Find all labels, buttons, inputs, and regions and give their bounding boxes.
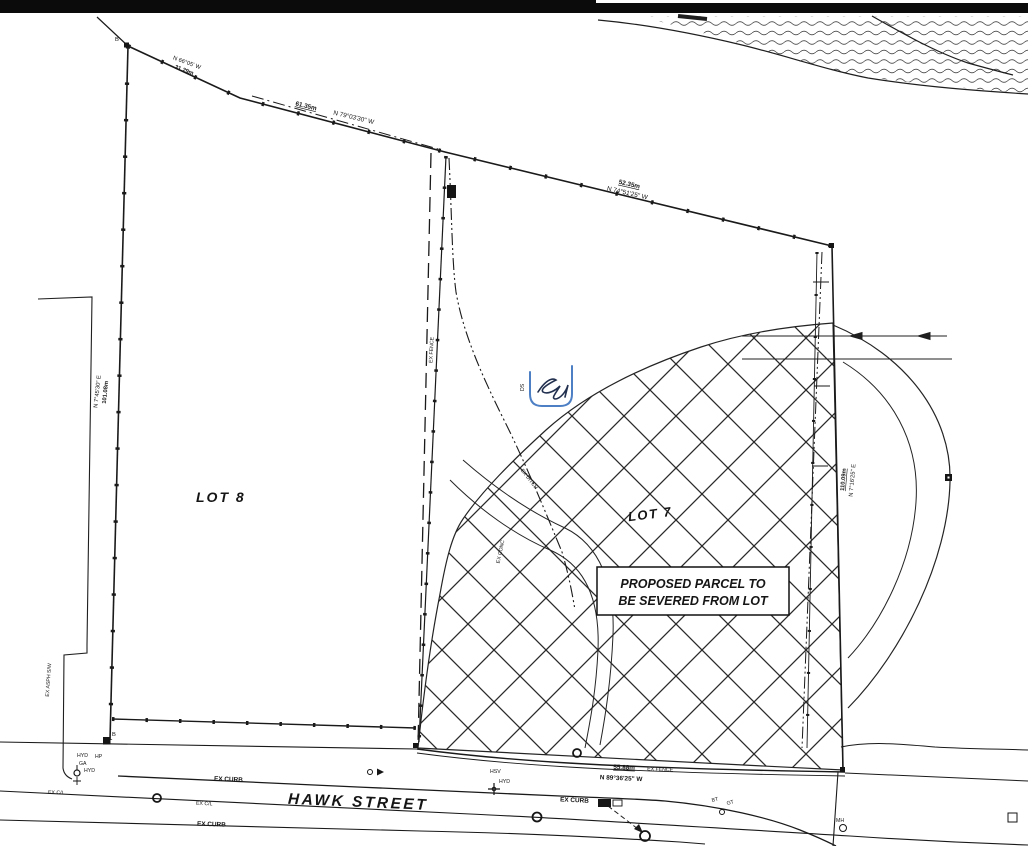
- survey-plan-drawing: LOT 8 LOT 7 PROPOSED PARCEL TO BE SEVERE…: [0, 0, 1028, 846]
- ex-curb-label: EX CURB: [197, 821, 226, 829]
- monument-icon: [124, 43, 129, 48]
- ex-curb-label: EX CURB: [560, 796, 589, 805]
- flag-square-icon: [1008, 813, 1017, 822]
- bf-triangle-icon: [377, 769, 384, 776]
- ex-curb-label: EX CURB: [214, 776, 243, 784]
- west-boundary: [110, 46, 128, 740]
- monument-icon: [103, 737, 111, 745]
- blue-annotation: [530, 366, 572, 406]
- driveway-dashed-arrow: [608, 806, 638, 829]
- arrow-icon: [918, 333, 930, 340]
- hyd-label: HYD: [77, 753, 88, 759]
- ex-fence-label: EX FENCE: [428, 336, 435, 363]
- parcel-note-line1: PROPOSED PARCEL TO: [620, 577, 765, 591]
- utility-icon: [368, 770, 373, 775]
- water-fill: [642, 16, 1028, 93]
- ds-label: DS: [520, 383, 526, 391]
- hp-label: HP: [95, 754, 103, 760]
- hsv-label: HSV: [490, 769, 501, 775]
- svg-text:55.88m: 55.88m: [613, 764, 635, 772]
- hydrant-icon: [73, 765, 81, 785]
- lot8-south-boundary: [112, 719, 416, 728]
- ex-cl-label: EX C/L: [196, 801, 213, 808]
- street-label: HAWK STREET: [288, 791, 429, 814]
- monument-icon: [413, 743, 418, 748]
- bearing-north-upper: N 66°05' W 31.29m: [169, 55, 202, 78]
- svg-text:110.09m: 110.09m: [840, 468, 848, 491]
- bearing-west: N 7°45'30" E 101.08m: [93, 375, 110, 409]
- bearing-north-lower: 52.35m N 74°51'25" W: [606, 177, 651, 202]
- north-boundary: [128, 46, 832, 246]
- blue-bracket: [530, 366, 572, 406]
- wavy-line-right: [841, 744, 1028, 750]
- svg-text:EX FENCE: EX FENCE: [647, 766, 674, 773]
- svg-text:N 7°16'25" E: N 7°16'25" E: [849, 464, 858, 497]
- water-area: [598, 16, 1028, 94]
- shed-block: [447, 185, 456, 198]
- svg-text:N 89°36'25" W: N 89°36'25" W: [600, 773, 644, 783]
- north-curb-line: [118, 776, 836, 846]
- lot8-label: LOT 8: [196, 489, 246, 505]
- parcel-note-line2: BE SEVERED FROM LOT: [618, 594, 769, 608]
- mh-label: MH: [836, 818, 844, 824]
- bearing-east: 110.09m N 7°16'25" E: [840, 463, 858, 497]
- centerline: [0, 791, 1028, 845]
- ga-label: GA: [79, 761, 87, 767]
- frontage-line-west: [0, 742, 417, 749]
- survey-plan-sheet: LOT 8 LOT 7 PROPOSED PARCEL TO BE SEVERE…: [0, 0, 1028, 846]
- ex-asph-sw-label: EX ASPH S/W: [45, 663, 53, 697]
- handwritten-initials: [538, 379, 568, 399]
- north-boundary-ticks: [128, 46, 832, 246]
- ex-cl-label: EX C/L: [48, 790, 65, 797]
- south-curb-line: [0, 820, 705, 844]
- right-ditch-arcs: [833, 325, 950, 708]
- crosshatch-parcel: [418, 323, 843, 770]
- monument-icon: [840, 767, 845, 772]
- hyd-label: HYD: [84, 768, 95, 774]
- north-tie-dashdot: [252, 96, 438, 149]
- b-label: B: [112, 732, 116, 738]
- svg-text:101.08m: 101.08m: [102, 381, 110, 404]
- hyd-label: HYD: [499, 779, 510, 785]
- catch-basin-outline: [613, 800, 622, 806]
- sidewalk-line: [38, 297, 92, 779]
- boundary-ext-topleft: [97, 17, 128, 46]
- page-top-bar: [0, 0, 1028, 13]
- frontage-line-east: [845, 773, 1028, 781]
- bt-label: BT: [711, 796, 720, 804]
- b-label: B: [115, 37, 119, 43]
- parcel-note-box: PROPOSED PARCEL TO BE SEVERED FROM LOT: [597, 567, 789, 615]
- monument-icon: [829, 243, 834, 248]
- manhole-icon: [840, 825, 847, 832]
- gt-label: GT: [726, 799, 735, 807]
- catch-basin-icon: [598, 799, 611, 807]
- utility-icon: [720, 810, 725, 815]
- svg-text:61.35m: 61.35m: [295, 100, 318, 112]
